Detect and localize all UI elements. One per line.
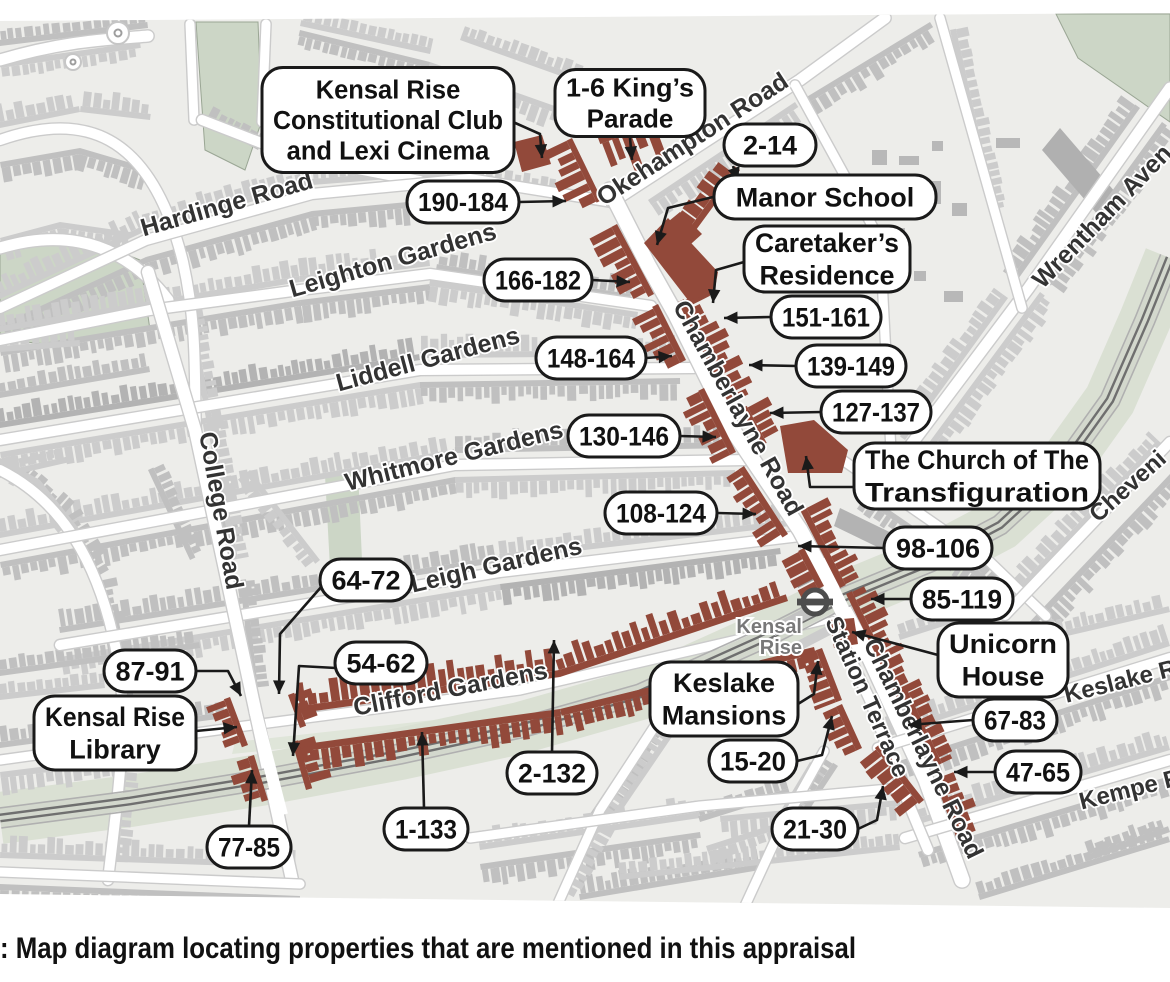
- svg-text:130-146: 130-146: [579, 421, 669, 451]
- svg-text:64-72: 64-72: [331, 566, 400, 596]
- svg-text:Kensal Rise: Kensal Rise: [316, 76, 461, 104]
- svg-text:The Church of The: The Church of The: [865, 445, 1089, 475]
- svg-text:: Map diagram locating propert: : Map diagram locating properties that a…: [0, 932, 856, 965]
- svg-text:21-30: 21-30: [783, 815, 847, 845]
- svg-text:Kensal: Kensal: [736, 616, 802, 638]
- svg-text:1-133: 1-133: [395, 815, 457, 845]
- svg-text:166-182: 166-182: [495, 265, 581, 295]
- svg-text:54-62: 54-62: [346, 649, 415, 679]
- svg-text:2-14: 2-14: [743, 130, 797, 160]
- svg-text:15-20: 15-20: [720, 747, 786, 777]
- svg-text:108-124: 108-124: [616, 499, 706, 529]
- svg-text:139-149: 139-149: [807, 351, 895, 381]
- svg-text:Manor School: Manor School: [736, 182, 915, 212]
- svg-text:77-85: 77-85: [218, 833, 280, 863]
- svg-text:Unicorn: Unicorn: [949, 629, 1057, 659]
- svg-text:98-106: 98-106: [896, 534, 980, 564]
- svg-text:Caretaker’s: Caretaker’s: [755, 228, 899, 258]
- svg-text:Transfiguration: Transfiguration: [865, 478, 1089, 508]
- svg-text:148-164: 148-164: [547, 343, 635, 373]
- svg-text:and Lexi Cinema: and Lexi Cinema: [287, 138, 490, 166]
- svg-text:Keslake: Keslake: [673, 668, 775, 698]
- svg-text:Residence: Residence: [759, 261, 894, 291]
- svg-text:House: House: [962, 662, 1045, 692]
- svg-text:Rise: Rise: [760, 637, 802, 659]
- svg-text:67-83: 67-83: [984, 706, 1046, 736]
- svg-text:1-6 King’s: 1-6 King’s: [566, 73, 694, 103]
- svg-text:47-65: 47-65: [1006, 758, 1070, 788]
- svg-text:2-132: 2-132: [518, 759, 586, 789]
- svg-text:Library: Library: [69, 735, 161, 765]
- svg-text:Mansions: Mansions: [662, 701, 787, 731]
- svg-text:87-91: 87-91: [115, 657, 184, 687]
- svg-text:85-119: 85-119: [922, 585, 1002, 615]
- svg-text:190-184: 190-184: [418, 187, 509, 217]
- svg-text:Parade: Parade: [587, 104, 674, 134]
- svg-text:151-161: 151-161: [782, 302, 870, 332]
- svg-text:Constitutional Club: Constitutional Club: [273, 107, 503, 135]
- svg-text:127-137: 127-137: [832, 397, 920, 427]
- svg-text:Kensal Rise: Kensal Rise: [45, 702, 185, 732]
